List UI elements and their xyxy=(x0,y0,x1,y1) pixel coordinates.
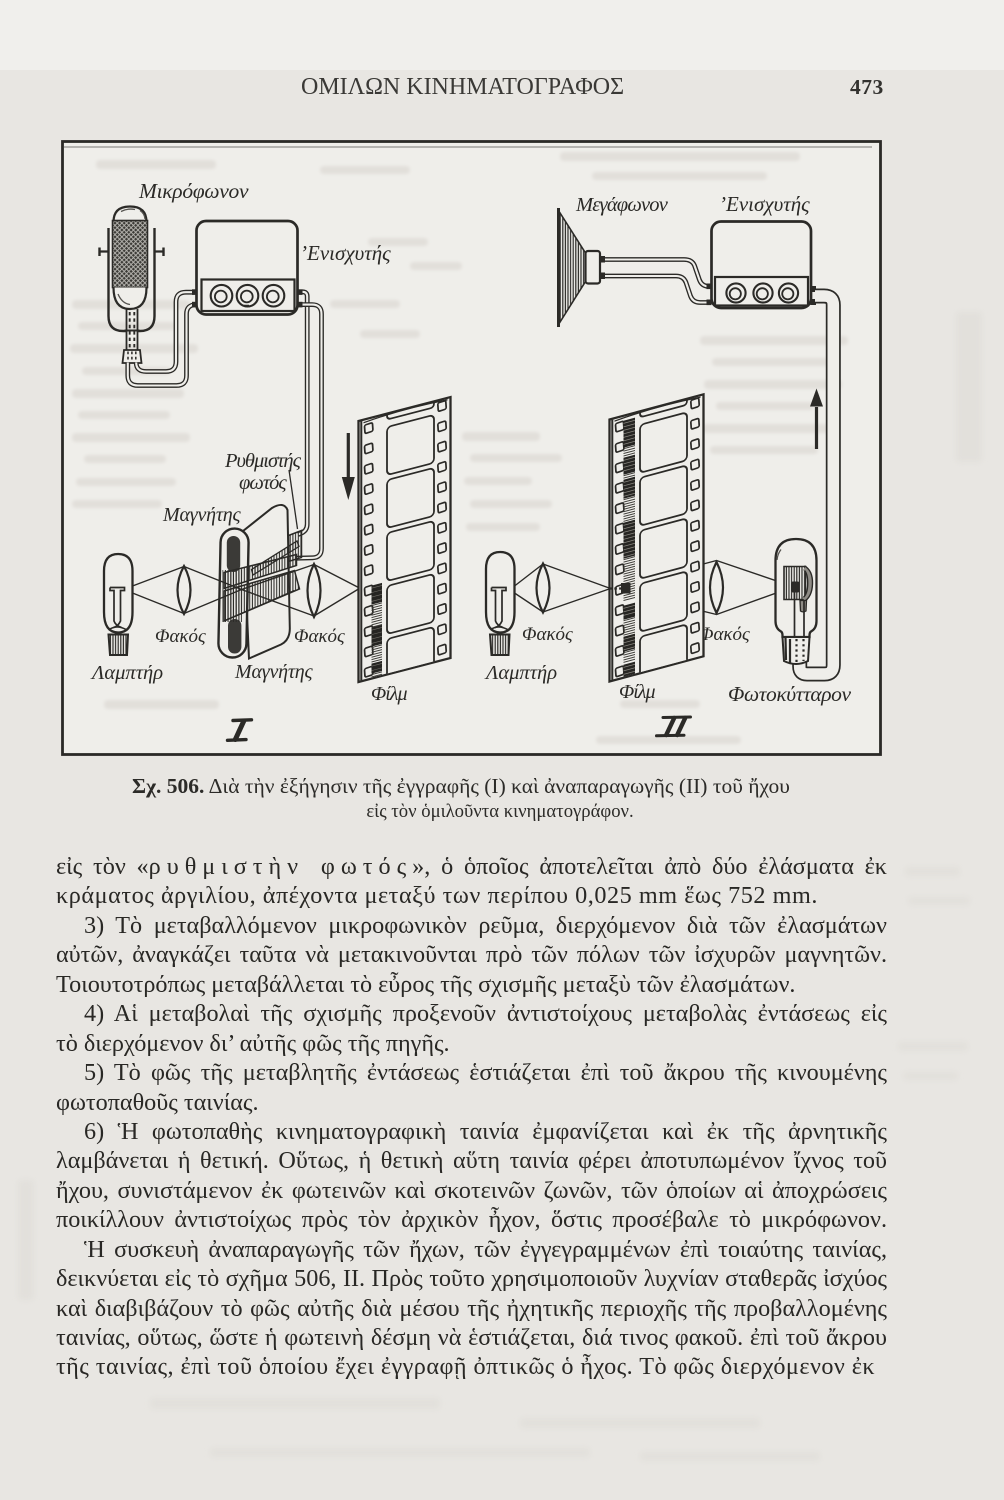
svg-text:Φακός: Φακός xyxy=(522,624,573,645)
svg-text:Φακός: Φακός xyxy=(155,626,206,647)
svg-text:Φίλμ: Φίλμ xyxy=(619,681,655,703)
svg-text:Λαμπτήρ: Λαμπτήρ xyxy=(484,662,557,684)
svg-text:’Ενισχυτής: ’Ενισχυτής xyxy=(719,192,810,216)
svg-text:Μικρόφωνον: Μικρόφωνον xyxy=(138,179,249,203)
svg-text:Μαγνήτης: Μαγνήτης xyxy=(162,504,242,526)
svg-text:Φακός: Φακός xyxy=(294,626,345,647)
svg-text:Μαγνήτης: Μαγνήτης xyxy=(234,661,314,683)
svg-text:Φακός: Φακός xyxy=(699,624,750,645)
svg-text:Λαμπτήρ: Λαμπτήρ xyxy=(90,662,163,684)
svg-text:Ρυθμιστής: Ρυθμιστής xyxy=(224,450,302,472)
svg-text:Μεγάφωνον: Μεγάφωνον xyxy=(575,194,669,216)
svg-text:’Ενισχυτής: ’Ενισχυτής xyxy=(300,241,391,265)
svg-text:Φωτοκύτταρον: Φωτοκύτταρον xyxy=(728,682,852,706)
svg-text:Φίλμ: Φίλμ xyxy=(371,683,407,705)
svg-text:φωτός: φωτός xyxy=(239,472,287,494)
